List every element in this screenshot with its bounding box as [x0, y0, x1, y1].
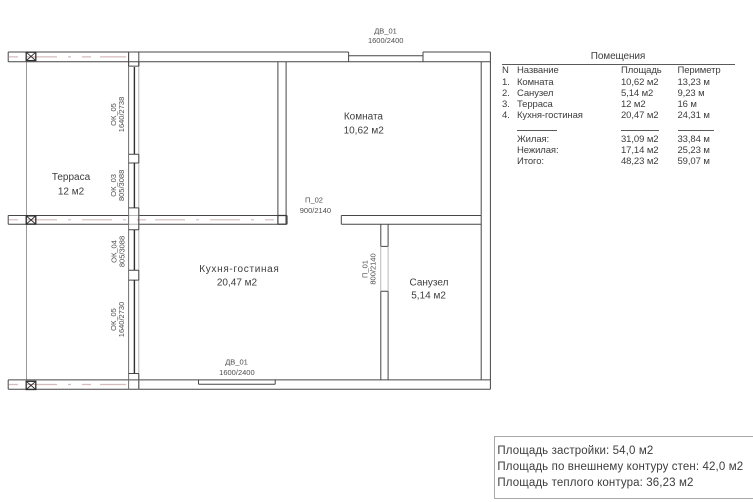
- svg-text:Кухня-гостиная: Кухня-гостиная: [199, 264, 279, 275]
- svg-text:12 м2: 12 м2: [58, 187, 85, 198]
- svg-text:1600/2400: 1600/2400: [368, 36, 403, 45]
- svg-text:20,47 м2: 20,47 м2: [217, 278, 258, 289]
- svg-text:1640/2730: 1640/2730: [117, 302, 126, 337]
- svg-text:10,62 м2: 10,62 м2: [344, 126, 385, 137]
- svg-text:Комната: Комната: [344, 112, 384, 123]
- svg-text:Терраса: Терраса: [52, 172, 91, 183]
- svg-text:5,14 м2: 5,14 м2: [411, 291, 446, 302]
- svg-text:805/3088: 805/3088: [117, 170, 126, 201]
- svg-text:ДВ_01: ДВ_01: [374, 27, 397, 36]
- svg-text:900/2140: 900/2140: [300, 206, 331, 215]
- svg-text:800/2140: 800/2140: [369, 253, 378, 284]
- svg-text:805/3088: 805/3088: [118, 236, 127, 267]
- svg-text:Санузел: Санузел: [410, 278, 449, 289]
- svg-text:П_02: П_02: [305, 196, 323, 205]
- svg-text:ДВ_01: ДВ_01: [225, 357, 248, 366]
- svg-text:1640/2738: 1640/2738: [117, 97, 126, 132]
- svg-text:1600/2400: 1600/2400: [219, 368, 254, 377]
